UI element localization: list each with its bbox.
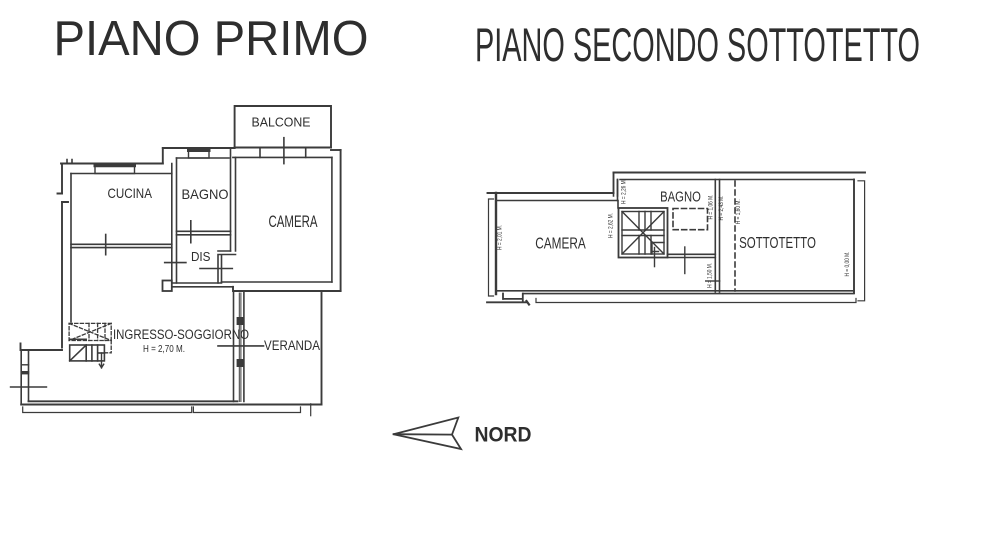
svg-text:PIANO PRIMO: PIANO PRIMO — [54, 11, 369, 66]
svg-text:VERANDA: VERANDA — [264, 337, 321, 353]
svg-text:CUCINA: CUCINA — [107, 185, 152, 201]
svg-text:H = 2,62 M.: H = 2,62 M. — [609, 213, 615, 238]
svg-text:CAMERA: CAMERA — [535, 236, 586, 253]
svg-text:NORD: NORD — [475, 424, 532, 447]
svg-text:H = 2,01 M.: H = 2,01 M. — [498, 225, 504, 250]
svg-text:H = 1,60 M.: H = 1,60 M. — [736, 199, 742, 224]
svg-text:BAGNO: BAGNO — [660, 190, 701, 206]
svg-text:DIS: DIS — [191, 249, 211, 264]
svg-text:BAGNO: BAGNO — [182, 186, 229, 202]
svg-text:H = 2,70 M.: H = 2,70 M. — [143, 344, 185, 355]
svg-text:PIANO SECONDO SOTTOTETTO: PIANO SECONDO SOTTOTETTO — [475, 19, 920, 72]
svg-text:H = 2,43 M.: H = 2,43 M. — [719, 195, 725, 220]
svg-text:SOTTOTETTO: SOTTOTETTO — [739, 235, 816, 252]
svg-text:CAMERA: CAMERA — [269, 212, 318, 231]
svg-text:H = 1,50 M.: H = 1,50 M. — [708, 263, 714, 288]
svg-text:H = 2,26 M.: H = 2,26 M. — [621, 179, 627, 204]
svg-text:INGRESSO-SOGGIORNO: INGRESSO-SOGGIORNO — [113, 327, 249, 342]
svg-text:BALCONE: BALCONE — [252, 115, 311, 130]
svg-text:H = 1,06 M.: H = 1,06 M. — [708, 194, 714, 219]
svg-text:H = 0,00 M.: H = 0,00 M. — [845, 251, 851, 276]
